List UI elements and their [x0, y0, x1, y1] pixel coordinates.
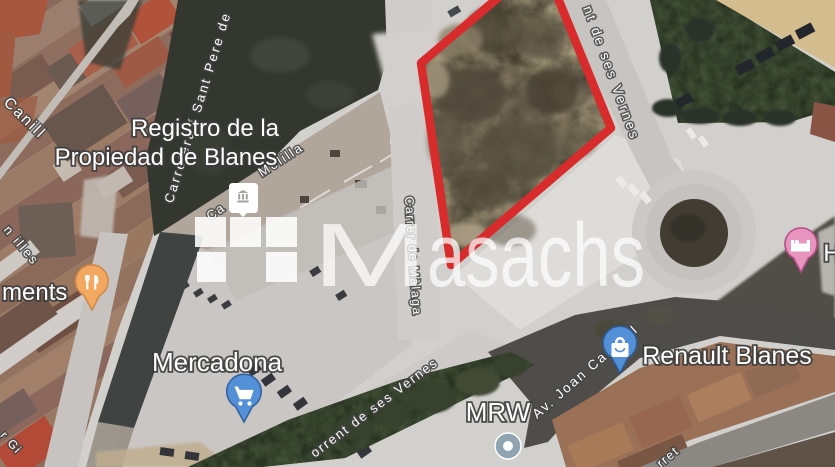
svg-text:MRW: MRW [466, 397, 531, 427]
svg-text:ments: ments [2, 279, 67, 306]
svg-text:Mercadona: Mercadona [152, 347, 283, 377]
svg-text:H: H [823, 240, 835, 267]
svg-text:asachs: asachs [427, 206, 645, 306]
svg-text:Renault Blanes: Renault Blanes [642, 342, 812, 370]
svg-text:Propiedad de Blanes: Propiedad de Blanes [55, 144, 278, 171]
svg-text:Registro de la: Registro de la [131, 115, 280, 142]
svg-text:M: M [312, 206, 428, 306]
